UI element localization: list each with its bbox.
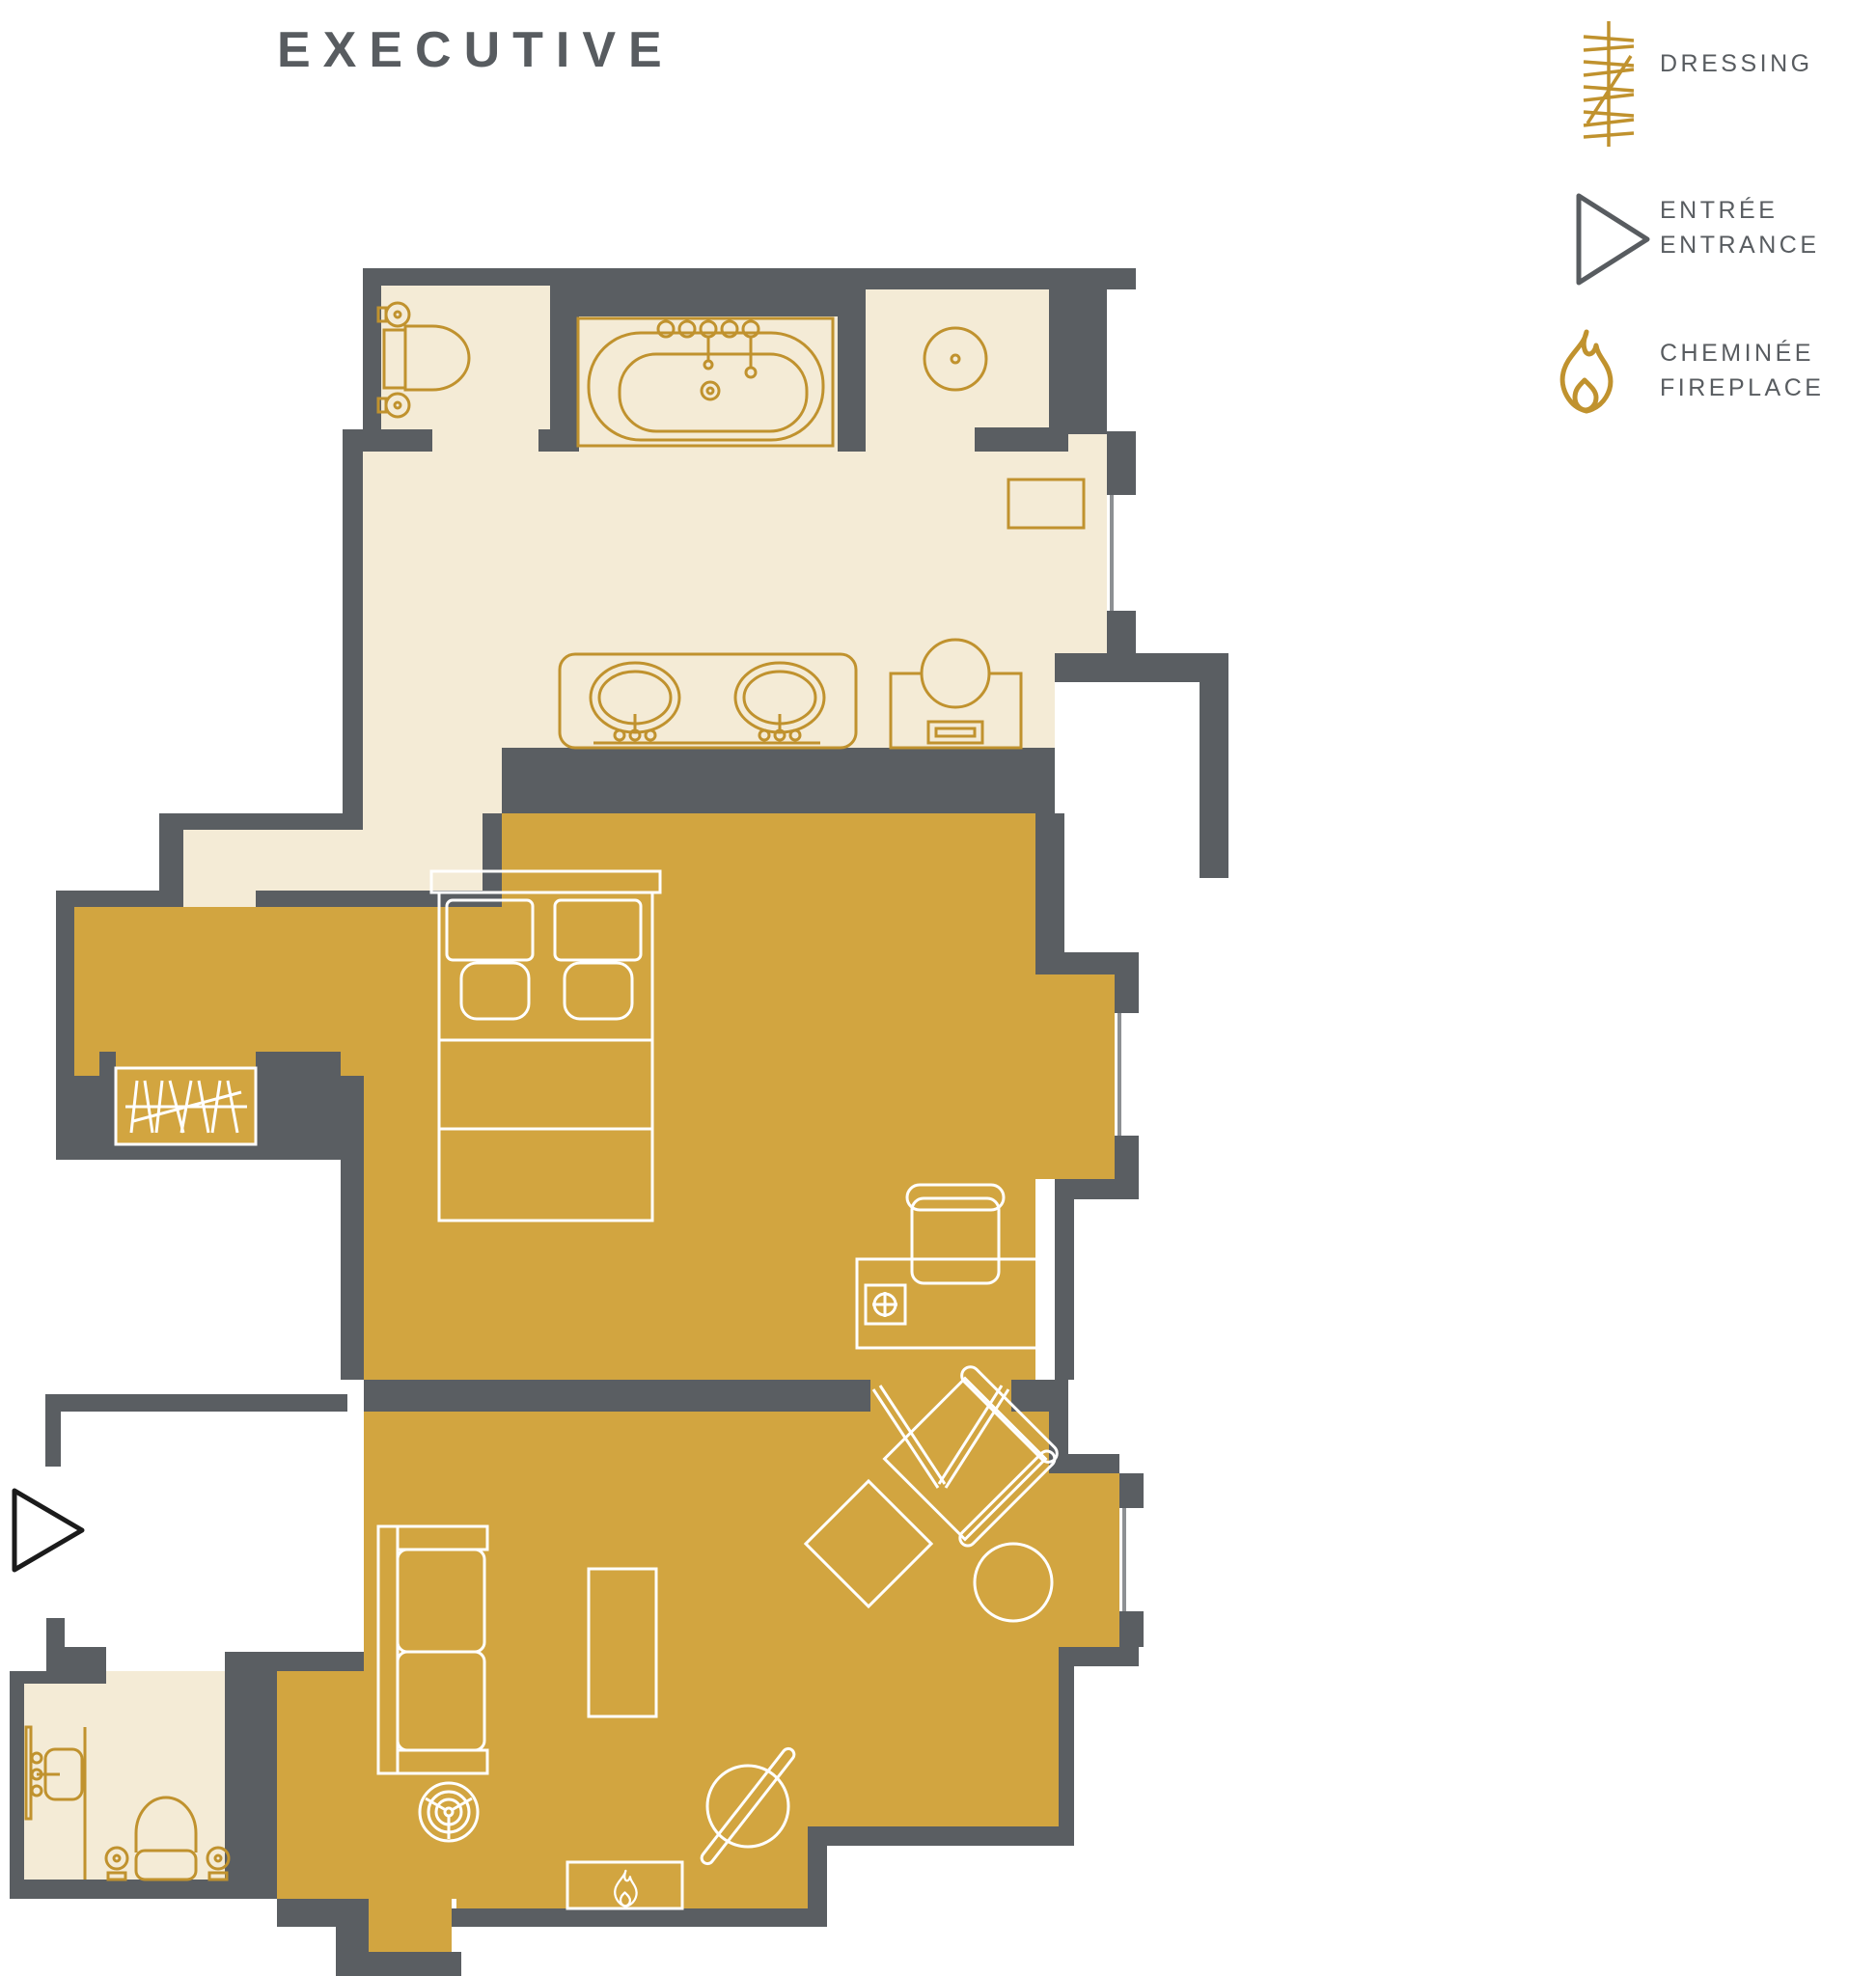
legend-entrance-icon (1579, 196, 1647, 283)
bathroom-window (1107, 495, 1136, 611)
legend-fireplace-icon (1562, 332, 1611, 411)
living-room-floor (277, 1412, 1119, 1952)
legend-dressing-icon (1584, 21, 1634, 147)
dressing-closet (116, 1068, 256, 1144)
floor-plan (0, 0, 1876, 1976)
living-room-window (1119, 1508, 1144, 1611)
floor-plan-page: { "title": "EXECUTIVE", "legend": { "ite… (0, 0, 1876, 1976)
entrance-triangle (14, 1491, 82, 1570)
bedroom-window (1115, 1013, 1139, 1136)
